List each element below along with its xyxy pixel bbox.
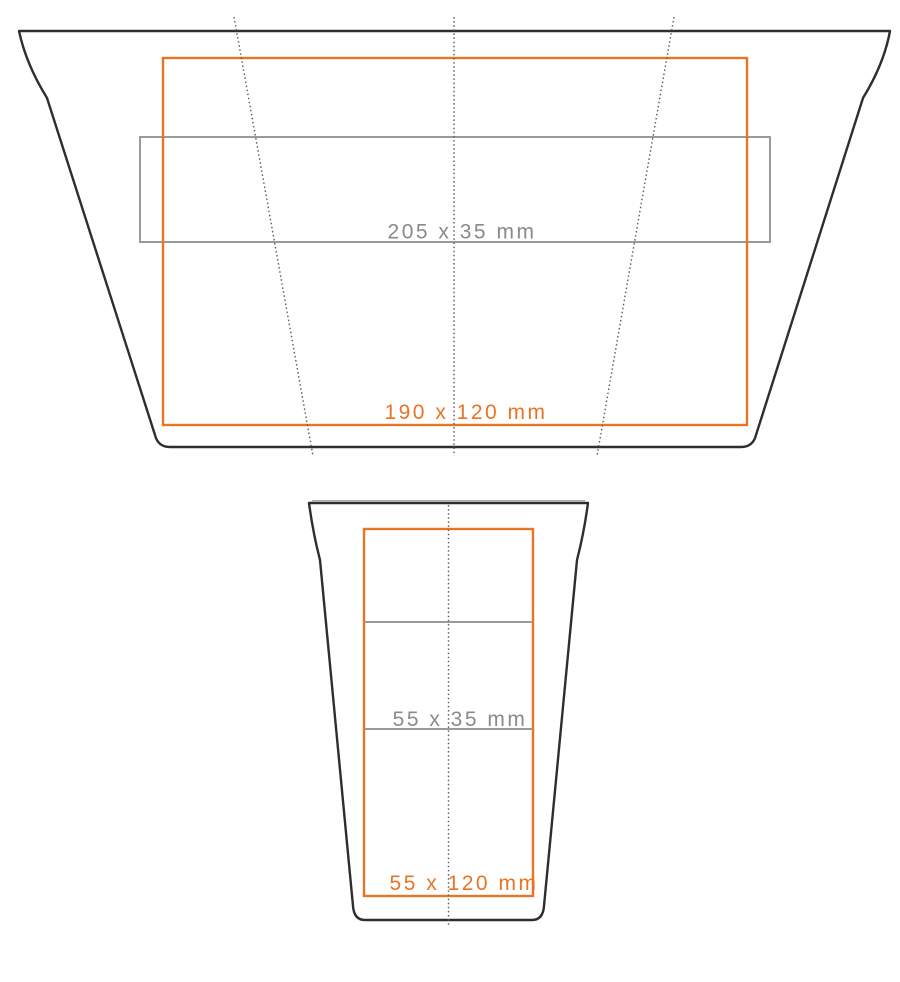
cup-front-view: 55 x 35 mm 55 x 120 mm — [309, 501, 588, 927]
flat-orange-area-dimension-label: 190 x 120 mm — [384, 401, 547, 424]
front-gray-area-dimension-label: 55 x 35 mm — [393, 708, 528, 731]
cup-print-template-page: 205 x 35 mm 190 x 120 mm 55 x 35 mm 55 x… — [0, 0, 900, 982]
cup-print-template-diagram: 205 x 35 mm 190 x 120 mm 55 x 35 mm 55 x… — [0, 0, 900, 982]
flat-development-view: 205 x 35 mm 190 x 120 mm — [19, 17, 890, 456]
flat-gray-area-dimension-label: 205 x 35 mm — [388, 221, 537, 244]
flat-left-wrap-guide-line — [234, 17, 313, 456]
flat-right-wrap-guide-line — [597, 17, 674, 456]
front-orange-area-dimension-label: 55 x 120 mm — [390, 872, 539, 895]
